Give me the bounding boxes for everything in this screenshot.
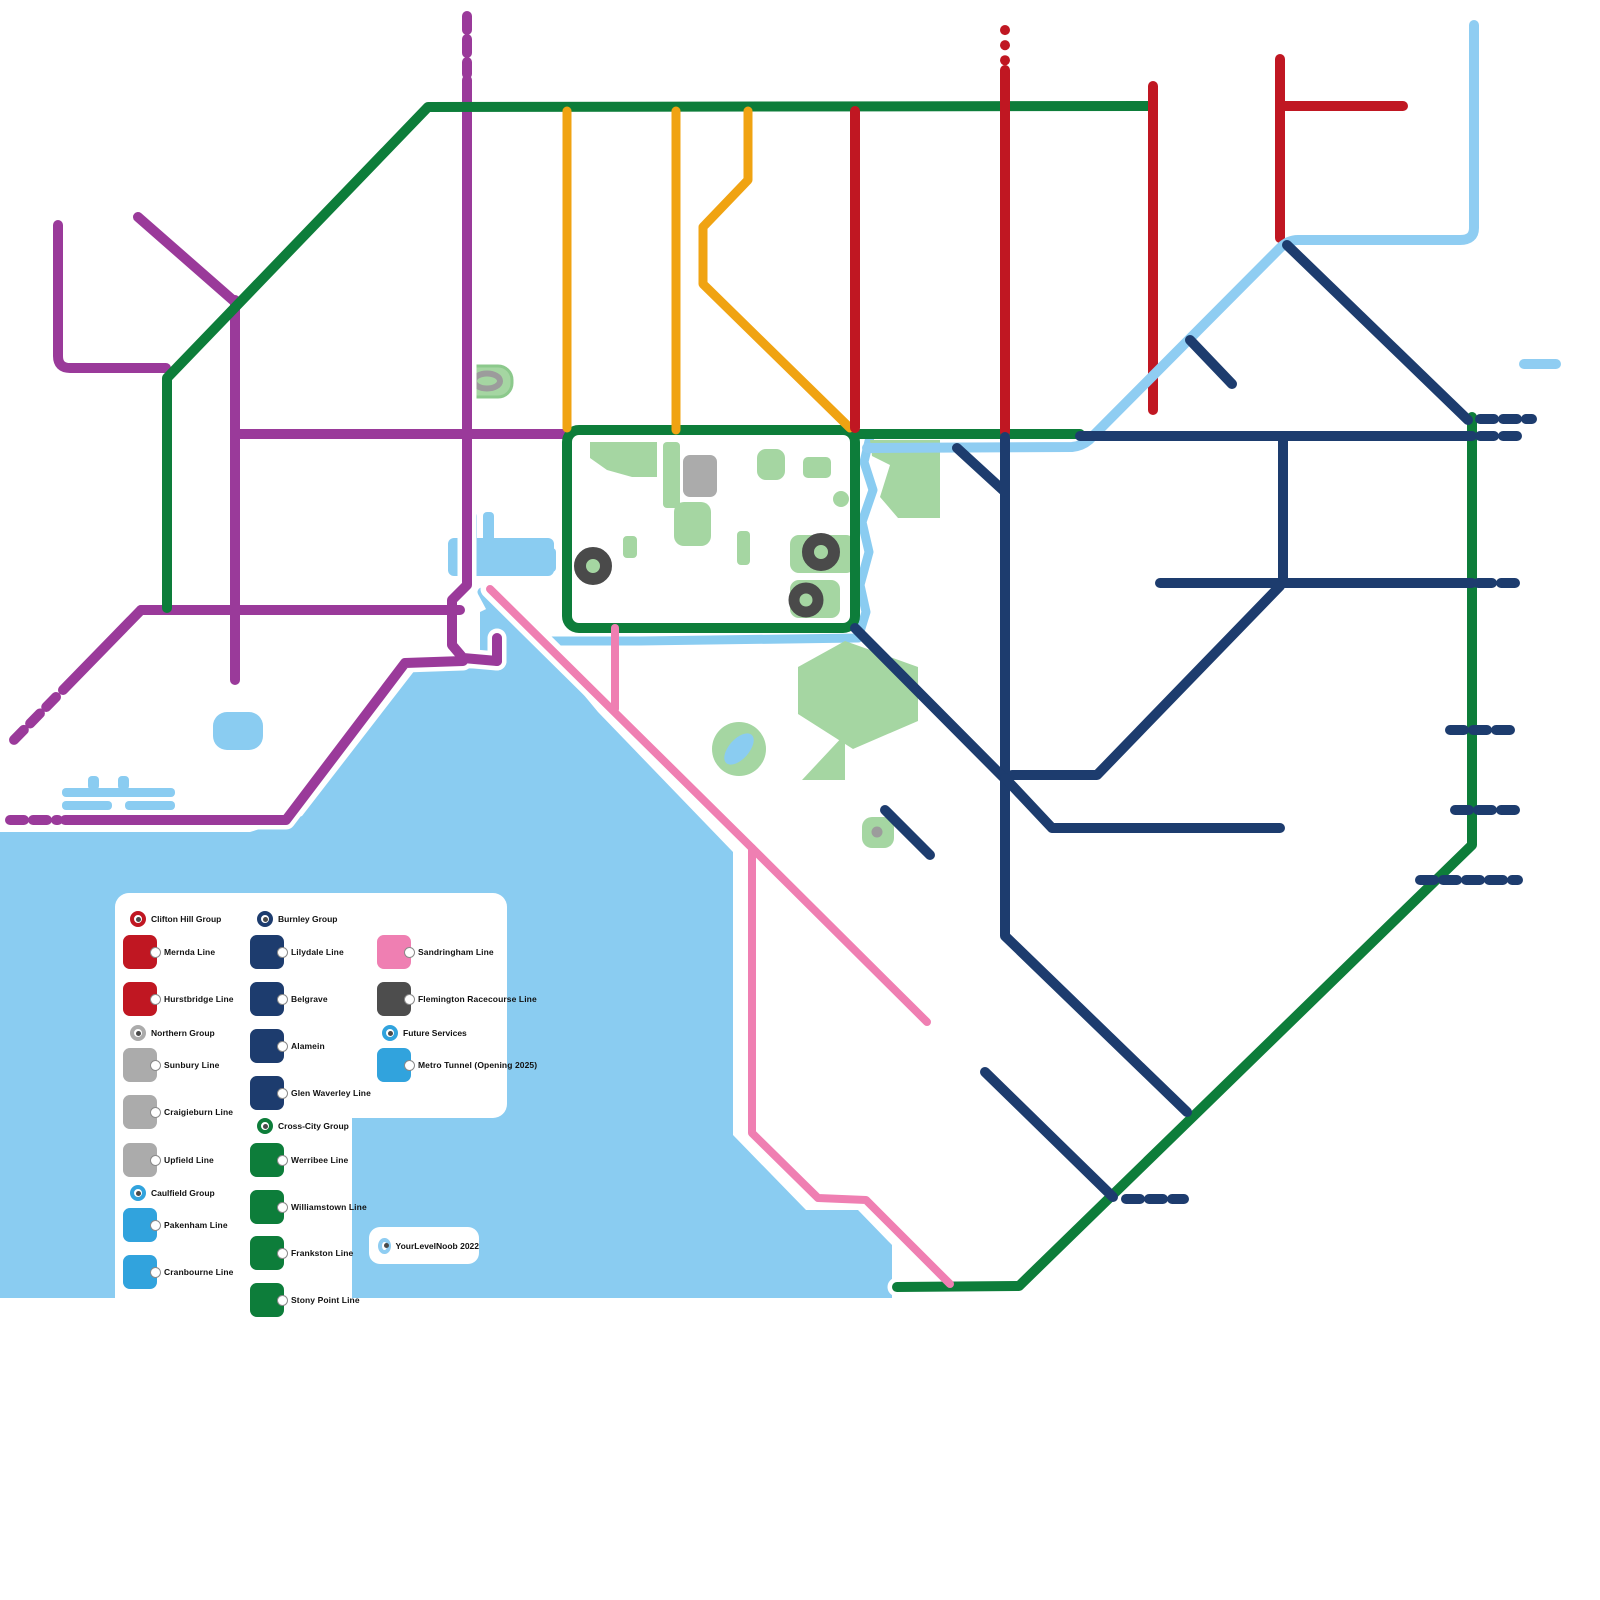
station-dot-icon [150,994,161,1005]
stadium-ring-icon [808,539,834,565]
station-dot-icon [277,994,288,1005]
west-docks [62,776,175,810]
skyblue-main-line [867,25,1474,448]
purple-nw-branch [138,217,235,302]
legend-group-burnley: Burnley Group [257,911,338,927]
station-dot-icon [277,1041,288,1052]
small-lake [213,712,263,750]
ring-icon [382,1025,398,1041]
rail-network-map [0,0,1600,1600]
legend-group-clifton-hill: Clifton Hill Group [130,911,221,927]
transit-map-canvas: Clifton Hill Group Mernda Line Hurstbrid… [0,0,1600,1600]
station-dot-icon [404,994,415,1005]
station-dot-icon [277,1295,288,1306]
watermark-badge: YourLevelNoob 2022 [369,1227,479,1264]
station-dot-icon [150,947,161,958]
station-dot-icon [150,1267,161,1278]
station-dot-icon [277,1248,288,1259]
ring-icon [257,1118,273,1134]
skyblue-lines [867,25,1556,448]
station-dot-icon [277,1155,288,1166]
station-dot-icon [150,1107,161,1118]
city-building-block [683,455,717,497]
red-lines [855,30,1403,432]
legend-group-caulfield: Caulfield Group [130,1185,215,1201]
station-dot-icon [150,1060,161,1071]
legend-group-northern: Northern Group [130,1025,215,1041]
alamein-branch [1190,340,1232,384]
ring-icon [257,911,273,927]
station-dot-icon [277,1202,288,1213]
richmond-connector [957,448,1005,492]
ring-icon [130,1025,146,1041]
legend-group-cross-city: Cross-City Group [257,1118,349,1134]
ring-icon [378,1238,391,1254]
stadium-ring-icon [580,553,606,579]
navy-lines [855,245,1532,1199]
station-dot-icon [150,1155,161,1166]
green-southeast-line [897,417,1472,1287]
glen-waverley-branch [1005,778,1280,828]
southeast-park-icon [862,817,894,848]
station-dot-icon [277,947,288,958]
station-dot-icon [404,947,415,958]
legend-group-future-services: Future Services [382,1025,467,1041]
station-dot-icon [150,1220,161,1231]
ring-icon [130,911,146,927]
stadium-ring-icon [794,588,818,612]
station-dot-icon [277,1088,288,1099]
yellow-lines [567,111,850,430]
station-dot-icon [404,1060,415,1071]
ring-icon [130,1185,146,1201]
